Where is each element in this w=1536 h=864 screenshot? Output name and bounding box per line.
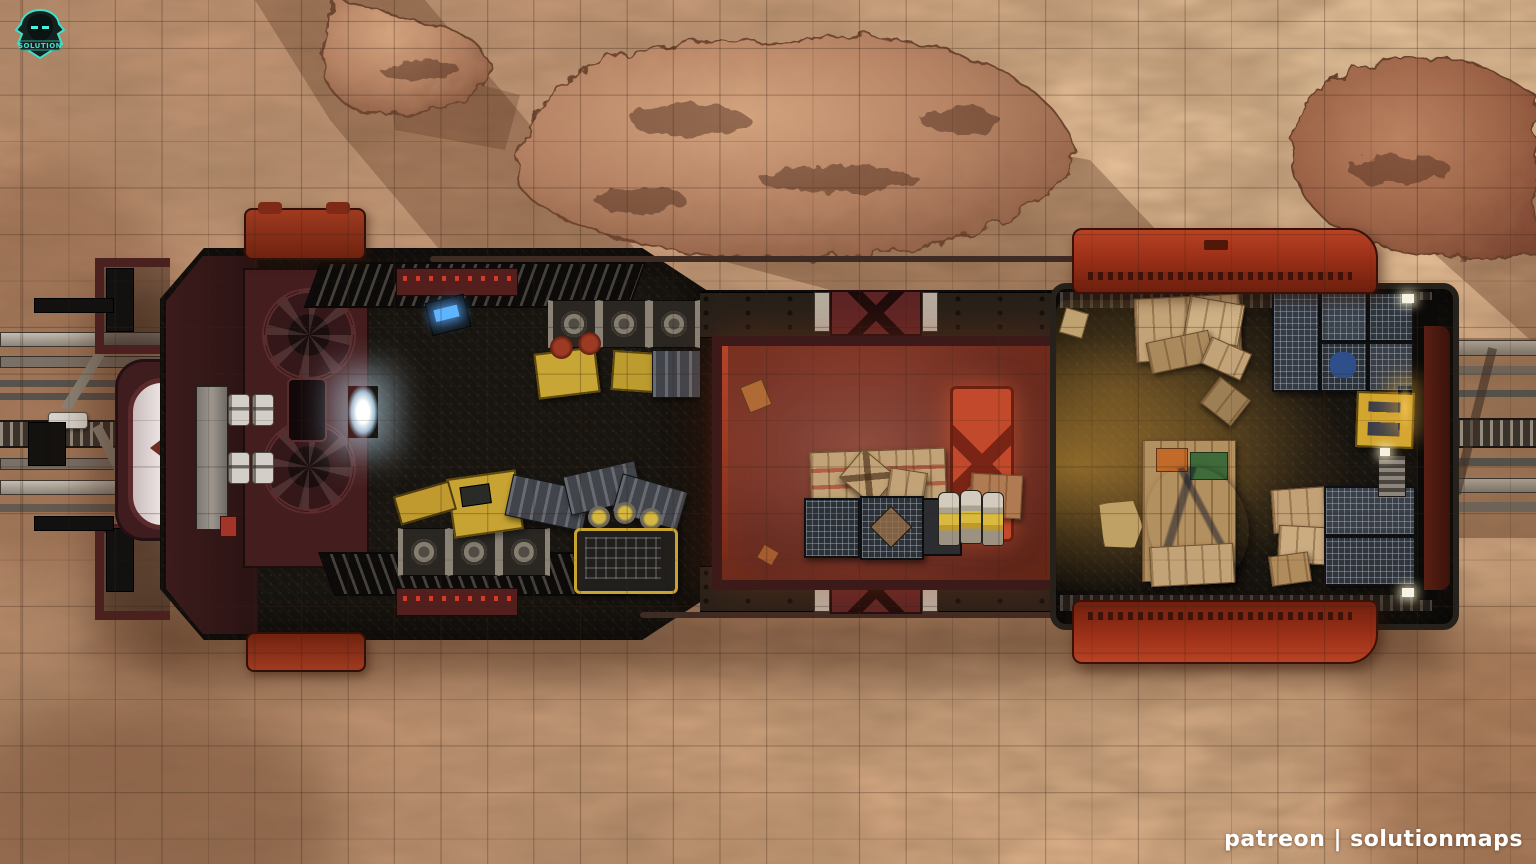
mesh-cage-crate xyxy=(1368,342,1414,392)
coupler-bar-bottom xyxy=(34,516,114,531)
mesh-cage-crate xyxy=(804,498,860,558)
solution-maps-logo: SOLUTION xyxy=(12,8,68,62)
loading-ramp xyxy=(1378,455,1406,497)
crew-seat xyxy=(228,394,250,426)
winch-machine xyxy=(598,300,650,348)
watermark-credit: patreon | solutionmaps xyxy=(1224,827,1523,852)
winch-machine xyxy=(498,528,550,576)
crew-seat xyxy=(252,452,274,484)
loader-cab-window xyxy=(459,483,491,507)
mesh-cage-crate xyxy=(1320,292,1368,342)
fuel-canister xyxy=(938,492,960,546)
rear-end-cap xyxy=(1424,326,1450,590)
amber-lamp xyxy=(1398,386,1412,430)
status-console-bottom xyxy=(396,588,518,616)
fuel-barrel xyxy=(550,336,573,359)
gas-barrel xyxy=(588,506,610,528)
deck-floodlight xyxy=(348,386,378,438)
roof-door-handle xyxy=(1204,240,1228,250)
logo-eye xyxy=(31,26,38,29)
status-console-top xyxy=(396,268,518,296)
yellow-crate-latch xyxy=(1367,401,1400,436)
hatch-plate xyxy=(922,292,938,332)
container-wall-glow xyxy=(722,346,728,560)
debris xyxy=(740,379,773,414)
yellow-frame-container xyxy=(574,528,678,594)
roof-rack-top xyxy=(244,208,366,260)
logo-eye xyxy=(42,26,49,29)
rack-nub xyxy=(258,202,282,214)
mesh-cage-crate xyxy=(860,496,924,560)
mesh-cage-crate xyxy=(1272,292,1320,392)
winch-machine xyxy=(648,300,700,348)
toolbox-red xyxy=(220,516,237,537)
fuel-barrel xyxy=(578,332,601,355)
mesh-cage-block-bottom xyxy=(1324,486,1416,584)
crew-seat xyxy=(228,452,250,484)
fuel-canister xyxy=(960,490,982,544)
gas-barrel xyxy=(640,508,662,530)
cage-contents xyxy=(870,506,912,548)
roof-door-hinge xyxy=(1088,612,1352,620)
coupler-bar-top xyxy=(34,298,114,313)
cage-contents-blue xyxy=(1330,352,1356,378)
engine-window xyxy=(287,378,327,442)
hatch-cross-top xyxy=(830,290,922,336)
crew-seat xyxy=(252,394,274,426)
corner-light xyxy=(1402,294,1414,303)
roof-door-hinge xyxy=(1088,272,1352,280)
mesh-cage-block-top xyxy=(1272,292,1414,392)
holo-screen xyxy=(433,305,459,322)
front-clamp-bottom xyxy=(106,528,134,592)
cardboard-box xyxy=(1268,551,1312,586)
mesh-cage-crate xyxy=(1320,342,1368,392)
mesh-cage-crate xyxy=(1324,536,1416,586)
pilot-console xyxy=(196,386,228,530)
armored-crate xyxy=(652,350,702,398)
logo-text: SOLUTION xyxy=(18,42,62,50)
container-grate xyxy=(585,537,661,579)
roof-rack-bottom xyxy=(246,632,366,672)
battle-map-canvas: SOLUTION patreon | solutionmaps xyxy=(0,0,1536,864)
corner-light xyxy=(1402,588,1414,597)
fuel-canister xyxy=(982,492,1004,546)
roof-pipe-top xyxy=(430,256,1078,262)
wooden-crate xyxy=(1149,543,1235,587)
red-cargo-container xyxy=(712,336,1066,590)
container-roof-door-top xyxy=(1072,228,1378,294)
container-roof-door-bottom xyxy=(1072,600,1378,664)
corner-light xyxy=(1380,448,1390,456)
crawler-land-train xyxy=(0,0,1536,864)
hatch-plate xyxy=(814,292,830,332)
rack-nub xyxy=(326,202,350,214)
debris xyxy=(758,545,779,565)
gas-barrel xyxy=(614,502,636,524)
winch-machine xyxy=(398,528,450,576)
